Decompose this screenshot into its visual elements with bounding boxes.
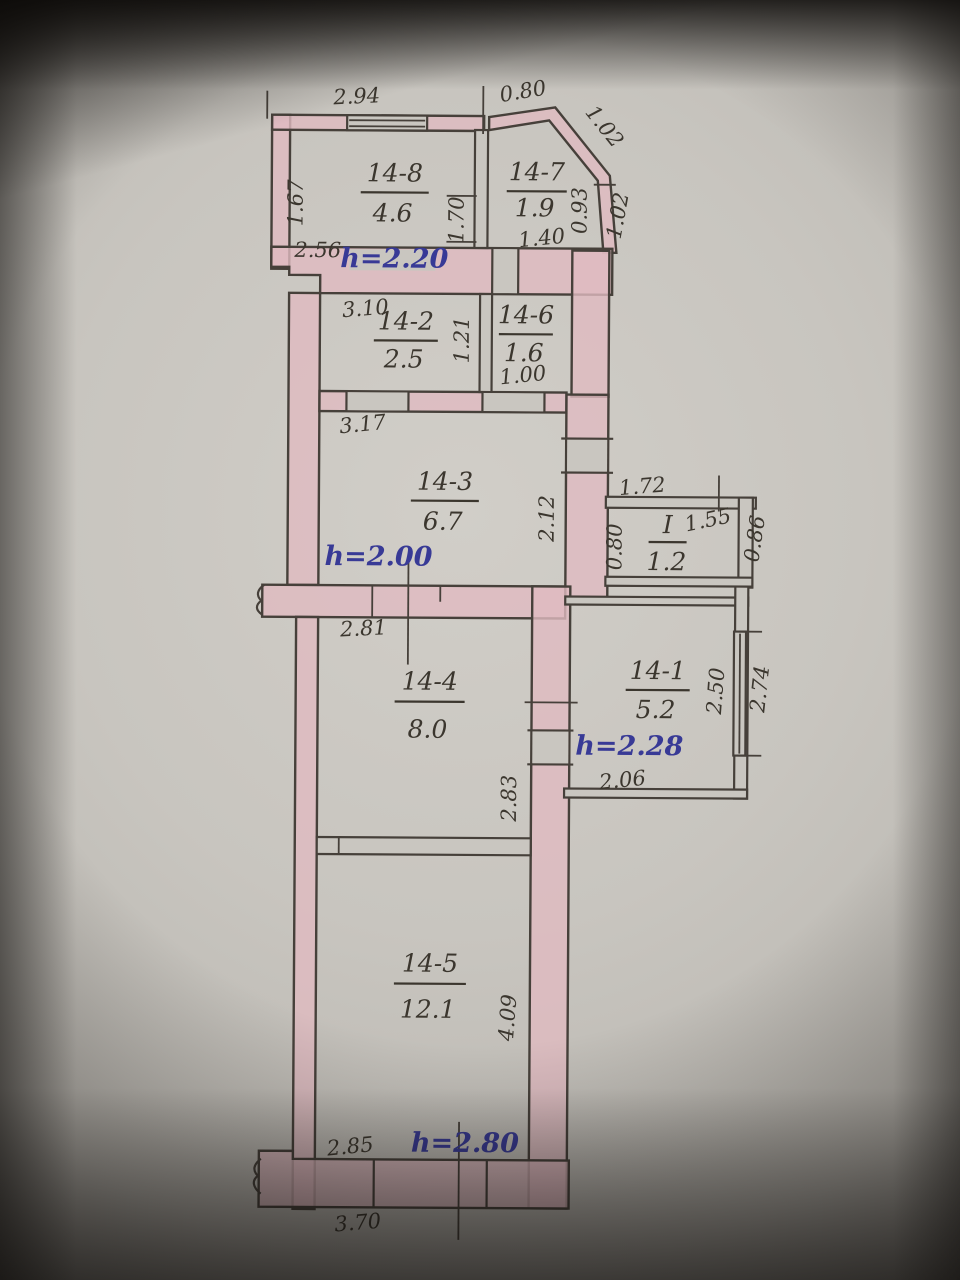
height-lower: h=2.80 xyxy=(411,1128,519,1160)
wall-14-1-bottom xyxy=(564,789,747,799)
dim-room-14-2-width: 3.10 xyxy=(341,295,390,323)
wall-west-middle xyxy=(287,293,320,585)
room-14-1-area: 5.2 xyxy=(636,695,676,724)
room-14-7-number: 14-7 xyxy=(509,157,565,186)
room-I-area: 1.2 xyxy=(647,547,687,576)
dim-room-14-4-top: 2.81 xyxy=(338,615,387,641)
floor-plan-drawing: 14-8 4.6 14-7 1.9 14-2 2.5 14-6 1.6 14-3… xyxy=(0,0,960,1280)
height-right: h=2.28 xyxy=(575,731,683,763)
room-14-2-area: 2.5 xyxy=(383,344,424,373)
room-14-8-area: 4.6 xyxy=(372,198,413,227)
room-14-4-number: 14-4 xyxy=(402,667,458,696)
dim-room-14-7-bottom: 1.40 xyxy=(517,224,566,252)
wall-shaft-upper xyxy=(571,251,609,397)
dim-room-14-4-height: 2.83 xyxy=(497,775,521,823)
room-14-4-area: 8.0 xyxy=(407,715,447,744)
room-14-1-number: 14-1 xyxy=(630,656,686,685)
height-upper: h=2.20 xyxy=(340,243,448,275)
door-corridor xyxy=(493,249,517,293)
dim-room-14-1-bottom: 2.06 xyxy=(597,766,647,795)
room-14-5-number: 14-5 xyxy=(402,949,458,978)
dim-room-14-1-right: 2.74 xyxy=(745,664,774,714)
wall-between-14-4-14-5 xyxy=(317,837,531,855)
room-14-5-area: 12.1 xyxy=(400,995,456,1024)
wall-lower-left xyxy=(293,617,319,1209)
wall-bottom xyxy=(259,1151,569,1209)
wall-lower-right xyxy=(529,586,571,1208)
dim-room-14-3-width: 3.17 xyxy=(338,410,388,439)
dim-room-14-1-window: 2.50 xyxy=(702,667,730,716)
wall-between-14-2-14-6 xyxy=(480,294,493,392)
room-14-1-window-glazing xyxy=(739,634,740,754)
door-14-3-right xyxy=(483,393,543,411)
door-14-3-east xyxy=(567,440,607,472)
dim-room-14-3-height: 2.12 xyxy=(535,495,559,543)
room-I-number: I xyxy=(662,510,674,539)
dim-bay-top: 0.80 xyxy=(498,76,548,107)
floor-plan-photo: 14-8 4.6 14-7 1.9 14-2 2.5 14-6 1.6 14-3… xyxy=(0,0,960,1280)
dim-bay-inner-height: 0.93 xyxy=(567,187,591,234)
dim-storeroom-left: 0.80 xyxy=(602,523,626,570)
dim-balcony-width: 2.94 xyxy=(332,83,381,109)
door-14-4-14-1 xyxy=(532,731,568,763)
dim-storeroom-top: 1.72 xyxy=(618,472,667,500)
room-14-3-area: 6.7 xyxy=(423,507,463,536)
dim-bay-diagonal: 1.02 xyxy=(581,101,629,153)
room-14-3-number: 14-3 xyxy=(417,467,473,496)
dim-room-14-5-bottom: 2.85 xyxy=(325,1132,375,1161)
wall-14-1-top xyxy=(565,597,748,606)
room-14-7-area: 1.9 xyxy=(515,193,555,222)
room-14-6-number: 14-6 xyxy=(498,300,554,329)
door-14-3-left xyxy=(347,392,407,410)
dim-balcony-inner-width: 2.56 xyxy=(293,238,341,262)
dim-room-14-5-height: 4.09 xyxy=(494,993,522,1042)
dim-bottom-outer: 3.70 xyxy=(333,1209,382,1237)
balcony-window xyxy=(347,115,427,130)
room-14-8-number: 14-8 xyxy=(367,158,423,187)
extension-line-2-81 xyxy=(408,560,409,665)
dim-balcony-depth: 1.67 xyxy=(284,179,308,227)
height-middle: h=2.00 xyxy=(324,541,432,573)
wall-between-14-8-14-7 xyxy=(474,130,488,248)
wall-storeroom-bottom xyxy=(605,577,752,587)
wall-cross-main xyxy=(262,585,565,619)
dim-room-14-2-height: 1.21 xyxy=(450,316,474,363)
dim-room-14-6-bottom: 1.00 xyxy=(498,361,547,389)
dim-partition-14-8-14-7: 1.70 xyxy=(444,196,468,243)
